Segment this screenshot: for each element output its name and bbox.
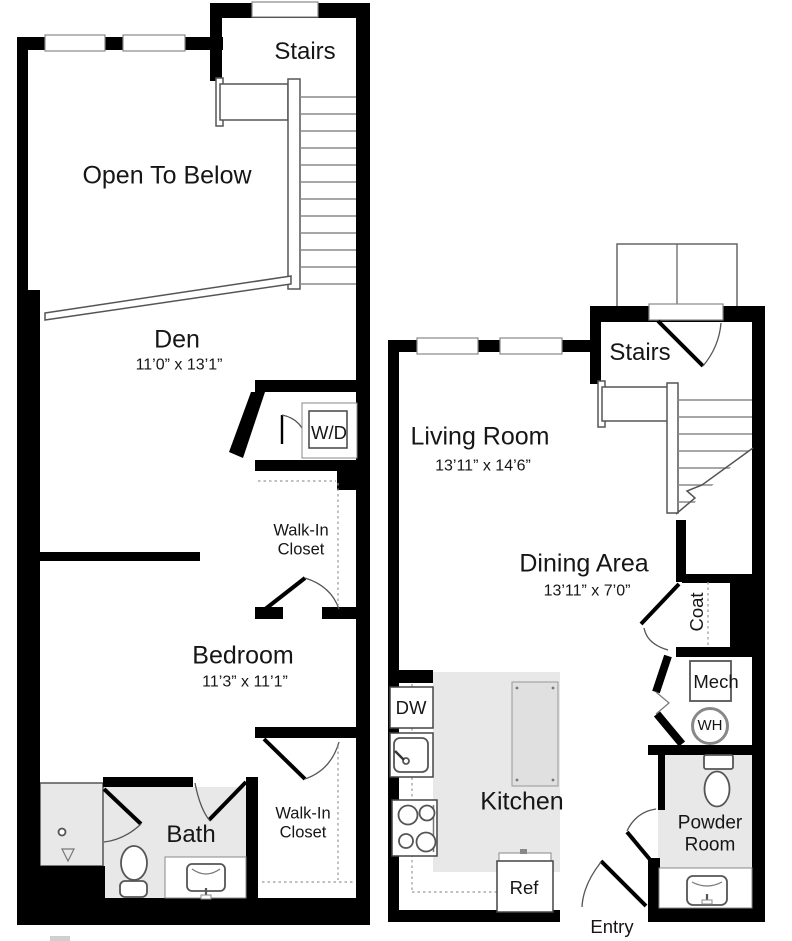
closet-door-leaf [264, 578, 305, 610]
living-room-dimensions: 13’11” x 14’6” [435, 458, 531, 477]
loft-railing [45, 276, 291, 320]
walk-in-line1: Walk-In [273, 522, 328, 541]
closet-door-arc [305, 578, 339, 609]
angled-wall [229, 392, 265, 458]
den-dimensions: 11’0” x 13’1” [136, 357, 223, 376]
floor-plan-canvas: Stairs Open To Below Den 11’0” x 13’1” W… [0, 0, 792, 941]
stair-treads [678, 400, 752, 502]
sink-icon [687, 876, 727, 905]
kitchen-label: Kitchen [480, 787, 563, 817]
walk-in-line2: Closet [275, 824, 330, 843]
mech-louver-door [656, 692, 669, 714]
powder-room-label: Powder Room [678, 813, 742, 858]
stair-rail [220, 84, 288, 120]
mech-angled-wall [657, 714, 682, 744]
living-room-label: Living Room [411, 422, 550, 452]
powder-door-arc [627, 809, 656, 831]
upper-unit-staircase [45, 78, 356, 320]
main-unit-staircase [598, 381, 753, 514]
bath-label: Bath [166, 821, 215, 849]
entry-threshold [649, 304, 723, 320]
walk-in-line2: Closet [273, 541, 328, 560]
entry-door-leaf [601, 861, 646, 906]
dining-area-label: Dining Area [519, 549, 648, 579]
coat-door-leaf [641, 584, 679, 624]
dishwasher-label: DW [396, 697, 427, 719]
powder-line1: Powder [678, 813, 742, 835]
mech-angled-wall [656, 656, 668, 692]
window [252, 2, 318, 17]
window [417, 338, 478, 354]
kitchen-sink-icon [390, 733, 433, 777]
washer-dryer-label: W/D [311, 422, 347, 444]
den-label: Den [154, 325, 200, 355]
entry-door-arc [582, 862, 601, 907]
upper-stairs-label: Stairs [274, 38, 335, 66]
walk-in-closet-lower-label: Walk-In Closet [275, 805, 330, 844]
refrigerator-label: Ref [510, 877, 539, 899]
walk-in-closet-upper-label: Walk-In Closet [273, 522, 328, 561]
floor-plan-drawing [0, 0, 792, 941]
entry-label: Entry [590, 916, 633, 938]
kitchen-island [512, 682, 558, 786]
window [123, 35, 185, 51]
powder-door-leaf [627, 832, 652, 862]
toilet-icon [120, 846, 147, 897]
stair-break-line [676, 448, 753, 514]
cropped-edge-artifact [50, 932, 110, 941]
powder-line2: Room [678, 835, 742, 857]
main-stairs-label: Stairs [609, 339, 670, 367]
window [500, 338, 562, 354]
mech-label: Mech [693, 671, 738, 693]
stair-rail [667, 383, 678, 513]
closet-door-arc [305, 742, 339, 779]
stairs-entry-door-arc [703, 323, 721, 366]
porch-landing [617, 244, 737, 310]
stair-rail [288, 79, 300, 289]
coat-closet-label: Coat [686, 592, 708, 631]
walk-in-line1: Walk-In [275, 805, 330, 824]
bedroom-dimensions: 11’3” x 11’1” [202, 674, 288, 693]
stair-treads [300, 97, 356, 284]
stair-rail [602, 387, 668, 421]
bedroom-label: Bedroom [192, 641, 293, 671]
bath-vanity [165, 857, 246, 899]
coat-door-arc [644, 628, 668, 650]
dining-area-dimensions: 13’11” x 7’0” [544, 583, 631, 602]
open-to-below-label: Open To Below [82, 161, 251, 191]
water-heater-label: WH [698, 717, 723, 735]
closet-door-leaf [264, 739, 305, 779]
window [45, 35, 105, 51]
stove-icon [392, 800, 437, 856]
